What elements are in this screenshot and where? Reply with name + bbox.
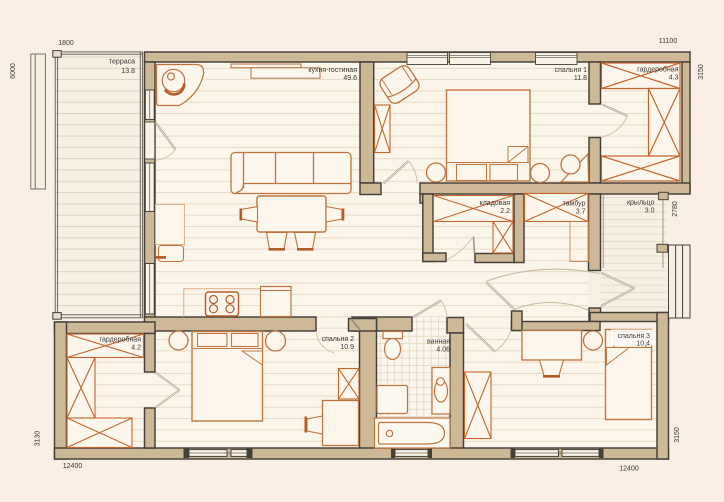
svg-text:49.6: 49.6	[343, 75, 357, 82]
svg-text:2.2: 2.2	[500, 208, 510, 215]
svg-text:спальня 3: спальня 3	[618, 333, 651, 340]
svg-text:терраса: терраса	[109, 59, 135, 66]
svg-text:13.8: 13.8	[121, 68, 135, 75]
svg-text:спальня 2: спальня 2	[322, 336, 355, 343]
svg-text:тамбур: тамбур	[563, 200, 586, 208]
svg-text:4.2: 4.2	[131, 345, 141, 352]
svg-text:кладовая: кладовая	[480, 200, 511, 207]
svg-text:2780: 2780	[672, 201, 679, 217]
svg-text:гардеробная: гардеробная	[100, 336, 142, 344]
svg-text:10.9: 10.9	[340, 344, 354, 351]
svg-text:спальня 1: спальня 1	[555, 67, 588, 74]
svg-text:3150: 3150	[674, 427, 681, 443]
svg-text:3.0: 3.0	[645, 208, 655, 215]
svg-text:3150: 3150	[698, 64, 705, 80]
svg-text:10.4: 10.4	[636, 341, 650, 348]
svg-text:3130: 3130	[35, 431, 42, 447]
svg-text:11100: 11100	[659, 38, 678, 45]
svg-text:крыльцо: крыльцо	[627, 200, 655, 207]
svg-text:гардеробная: гардеробная	[637, 66, 679, 74]
svg-text:ванная: ванная	[427, 339, 450, 346]
svg-text:1800: 1800	[58, 40, 74, 47]
svg-text:12400: 12400	[63, 463, 83, 470]
svg-text:4.06: 4.06	[436, 347, 450, 354]
svg-text:11.8: 11.8	[574, 75, 587, 82]
svg-text:3.7: 3.7	[576, 209, 586, 216]
svg-text:кухня-гостиная: кухня-гостиная	[308, 67, 357, 74]
svg-text:4.3: 4.3	[669, 75, 679, 82]
svg-text:12400: 12400	[619, 466, 639, 473]
svg-text:6000: 6000	[10, 63, 17, 79]
